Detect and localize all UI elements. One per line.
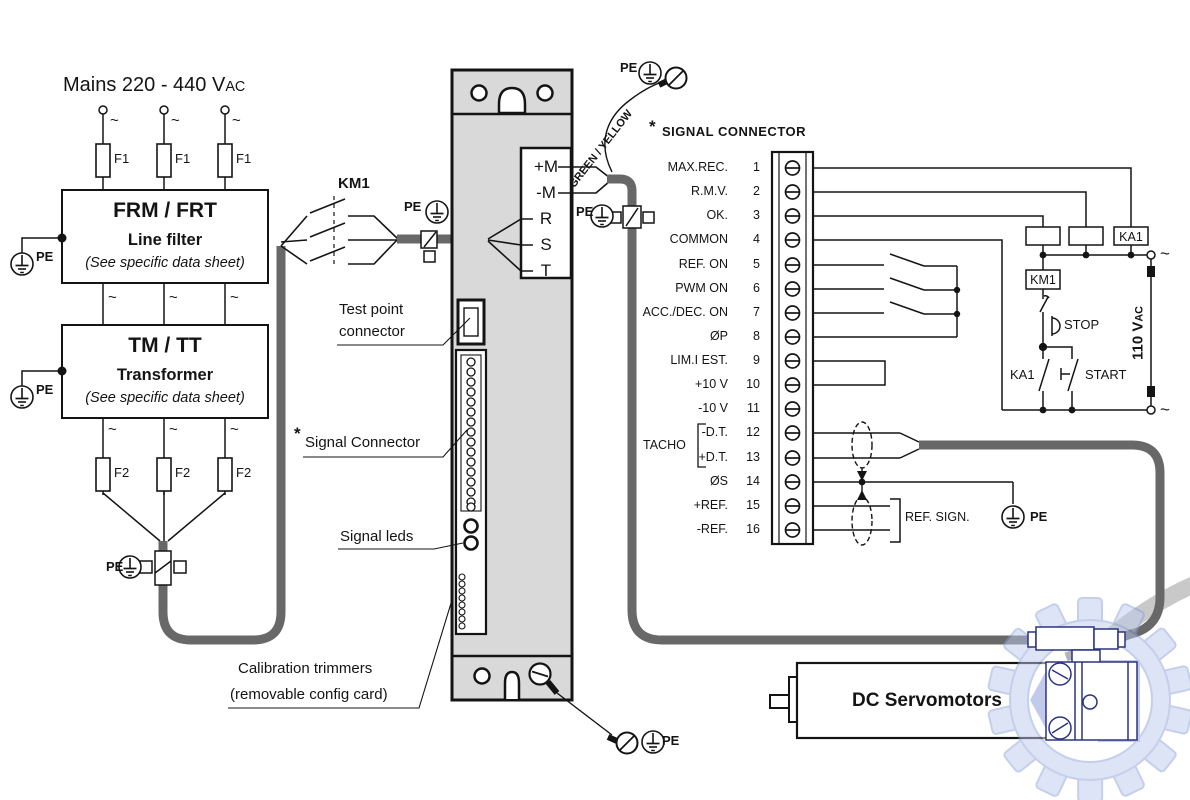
test-point-label: Test point	[339, 301, 403, 318]
pe-label: PE	[36, 250, 53, 265]
ac-symbol: ~	[1160, 244, 1170, 264]
fuse-icon	[218, 144, 232, 177]
relay-coil-box	[1069, 227, 1103, 245]
ac-symbol: ~	[169, 289, 178, 306]
mains-title: Mains 220 - 440 VAC	[63, 74, 245, 97]
ka1-coil-label: KA1	[1114, 230, 1148, 244]
signal-wires	[813, 168, 1131, 542]
fuse-label-f2: F2	[236, 466, 251, 481]
fuse-label-f1: F1	[236, 152, 251, 167]
row-label-2: R.M.V.	[598, 184, 728, 198]
ka1-contact-label: KA1	[1010, 368, 1035, 383]
pe-label: PE	[576, 205, 593, 220]
row-label-16: -REF.	[598, 522, 728, 536]
asterisk: *	[649, 117, 656, 137]
motor-label: DC Servomotors	[852, 690, 1002, 712]
pe-label: PE	[620, 61, 637, 76]
pe-ground-icon	[639, 62, 661, 84]
signal-led-icon	[465, 537, 478, 550]
row-label-8: ØP	[598, 329, 728, 343]
pe-label: PE	[1030, 510, 1047, 525]
signal-leds-callout: Signal leds	[340, 528, 413, 545]
row-label-4: COMMON	[598, 232, 728, 246]
fuse-icon	[218, 458, 232, 491]
ac-symbol: ~	[232, 112, 241, 129]
tacho-label: TACHO	[643, 438, 686, 452]
mains-cable	[163, 246, 281, 640]
mounting-hole-icon	[472, 86, 487, 101]
row-num-4: 4	[736, 232, 760, 246]
mains-section	[11, 106, 268, 541]
test-point-label2: connector	[339, 323, 405, 340]
ac-symbol: ~	[110, 112, 119, 129]
terminal-plus-m: +M	[524, 157, 568, 177]
row-num-5: 5	[736, 257, 760, 271]
row-num-14: 14	[736, 474, 760, 488]
ac-symbol: ~	[1160, 400, 1170, 420]
terminal-t: T	[524, 261, 568, 281]
km1-coil-label: KM1	[1026, 273, 1060, 287]
contactor-label: KM1	[338, 175, 370, 192]
transformer-title: TM / TT	[62, 334, 268, 358]
row-label-3: OK.	[598, 208, 728, 222]
ac-symbol: ~	[230, 421, 239, 438]
pe-label: PE	[106, 560, 123, 575]
ka1-contact-icon	[1039, 359, 1049, 391]
row-label-9: LIM.I EST.	[598, 353, 728, 367]
ac-symbol: ~	[108, 421, 117, 438]
terminal-minus-m: -M	[524, 183, 568, 203]
signal-led-icon	[465, 520, 478, 533]
stop-label: STOP	[1064, 318, 1099, 333]
row-num-15: 15	[736, 498, 760, 512]
asterisk: *	[294, 424, 301, 444]
pe-ground-icon	[642, 731, 664, 753]
row-label-6: PWM ON	[598, 281, 728, 295]
shield-icon	[852, 497, 872, 545]
fuse-icon	[96, 144, 110, 177]
line-filter-title: FRM / FRT	[62, 199, 268, 223]
start-contact-icon	[1068, 359, 1078, 391]
test-point-connector	[458, 300, 484, 344]
fuse-icon	[96, 458, 110, 491]
fuse-label-f2: F2	[175, 466, 190, 481]
ac-symbol: ~	[108, 289, 117, 306]
cable-clamp-icon	[421, 231, 437, 262]
row-label-5: REF. ON	[598, 257, 728, 271]
calibration-callout: Calibration trimmers	[238, 660, 372, 677]
motor-flange	[789, 677, 797, 722]
row-num-10: 10	[736, 377, 760, 391]
pe-label: PE	[404, 200, 421, 215]
line-filter-note: (See specific data sheet)	[62, 255, 268, 272]
row-label-15: +REF.	[598, 498, 728, 512]
terminal-s: S	[524, 235, 568, 255]
shield-icon	[852, 422, 872, 468]
supply-110v-label: 110 VAC	[1129, 306, 1146, 360]
row-num-3: 3	[736, 208, 760, 222]
ac-symbol: ~	[169, 421, 178, 438]
mounting-hole-icon	[475, 669, 490, 684]
signal-connector-callout: Signal Connector	[305, 434, 420, 451]
shielded-pairs	[852, 422, 872, 545]
terminal-r: R	[524, 209, 568, 229]
pe-label: PE	[662, 734, 679, 749]
row-label-10: +10 V	[598, 377, 728, 391]
signal-connector-title: SIGNAL CONNECTOR	[662, 125, 806, 140]
row-num-6: 6	[736, 281, 760, 295]
cable-clamp-icon	[140, 551, 186, 585]
calibration-callout2: (removable config card)	[230, 686, 388, 703]
pe-ground-icon	[11, 386, 33, 408]
transformer-note: (See specific data sheet)	[62, 390, 268, 407]
fuse-label-f1: F1	[114, 152, 129, 167]
keyhole-slot-icon	[505, 672, 519, 699]
row-label-1: MAX.REC.	[598, 160, 728, 174]
ac-symbol: ~	[230, 289, 239, 306]
start-label: START	[1085, 368, 1126, 383]
fuse-icon	[157, 144, 171, 177]
ref-sign-label: REF. SIGN.	[905, 510, 970, 524]
row-num-7: 7	[736, 305, 760, 319]
keyhole-slot-icon	[499, 88, 525, 113]
row-num-13: 13	[736, 450, 760, 464]
row-num-1: 1	[736, 160, 760, 174]
ac-symbol: ~	[171, 112, 180, 129]
relay-coil-box	[1026, 227, 1060, 245]
row-num-2: 2	[736, 184, 760, 198]
row-num-8: 8	[736, 329, 760, 343]
row-num-11: 11	[736, 401, 760, 415]
stop-button-icon	[1052, 316, 1060, 336]
screw-terminal-icon	[530, 664, 551, 685]
km1-contactor	[281, 196, 398, 268]
ref-sign-bracket	[890, 499, 900, 542]
pe-ground-icon	[1002, 506, 1024, 528]
pe-ground-icon	[11, 253, 33, 275]
fuse-label-f2: F2	[114, 466, 129, 481]
pe-label: PE	[36, 383, 53, 398]
wiring-diagram: Mains 220 - 440 VAC ~ ~ ~ F1 F1 F1 FRM /…	[0, 0, 1190, 800]
row-label-7: ACC./DEC. ON	[598, 305, 728, 319]
ring-terminal-icon	[666, 68, 687, 89]
fuse-icon	[157, 458, 171, 491]
fuse-label-f1: F1	[175, 152, 190, 167]
transformer-subtitle: Transformer	[62, 366, 268, 385]
row-num-12: 12	[736, 425, 760, 439]
pe-ground-icon	[426, 201, 448, 223]
row-label-14: ØS	[598, 474, 728, 488]
mounting-hole-icon	[538, 86, 553, 101]
row-label-11: -10 V	[598, 401, 728, 415]
row-num-9: 9	[736, 353, 760, 367]
nc-contact-icon	[1040, 296, 1049, 312]
line-filter-subtitle: Line filter	[62, 231, 268, 250]
ring-terminal-icon	[617, 733, 638, 754]
row-num-16: 16	[736, 522, 760, 536]
